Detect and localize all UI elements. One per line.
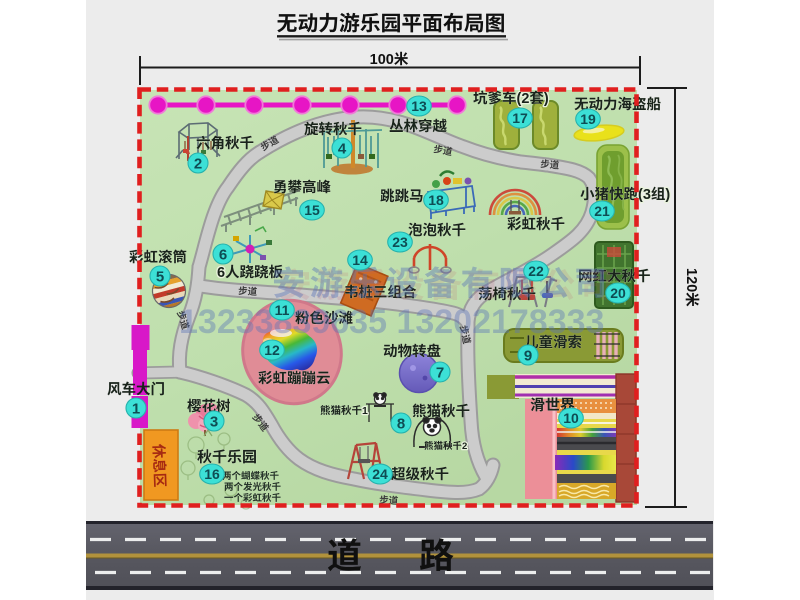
svg-text:17: 17 xyxy=(512,110,528,126)
svg-text:11: 11 xyxy=(275,302,290,318)
svg-text:): ) xyxy=(544,91,549,107)
svg-text:14: 14 xyxy=(352,252,368,268)
svg-text:3: 3 xyxy=(210,413,218,430)
svg-text:22: 22 xyxy=(528,263,544,279)
svg-text:23: 23 xyxy=(392,234,408,250)
svg-text:2: 2 xyxy=(462,441,467,452)
svg-text:10: 10 xyxy=(563,410,579,426)
svg-text:1: 1 xyxy=(132,400,140,417)
svg-text:): ) xyxy=(665,187,670,203)
svg-text:13: 13 xyxy=(411,98,427,114)
svg-text:4: 4 xyxy=(338,140,347,157)
svg-text:15: 15 xyxy=(304,202,320,218)
svg-text:2: 2 xyxy=(194,155,202,172)
svg-text:120: 120 xyxy=(683,268,699,292)
svg-text:(2: (2 xyxy=(517,91,530,107)
svg-text:21: 21 xyxy=(594,203,610,219)
svg-text:13233839635 13202178333: 13233839635 13202178333 xyxy=(179,303,604,341)
svg-text:18: 18 xyxy=(428,192,444,208)
svg-text:7: 7 xyxy=(436,364,444,381)
svg-text:6: 6 xyxy=(217,265,225,281)
svg-text:12: 12 xyxy=(264,342,280,358)
svg-text:1: 1 xyxy=(362,405,368,417)
svg-text:(3: (3 xyxy=(638,187,651,203)
svg-text:100: 100 xyxy=(370,52,394,68)
svg-text:20: 20 xyxy=(610,285,626,301)
svg-text:6: 6 xyxy=(219,246,227,263)
svg-text:9: 9 xyxy=(524,347,532,364)
svg-text:8: 8 xyxy=(397,415,405,432)
svg-text:5: 5 xyxy=(156,268,164,285)
svg-text:19: 19 xyxy=(580,111,596,127)
svg-text:24: 24 xyxy=(372,466,388,482)
svg-text:16: 16 xyxy=(204,466,220,482)
